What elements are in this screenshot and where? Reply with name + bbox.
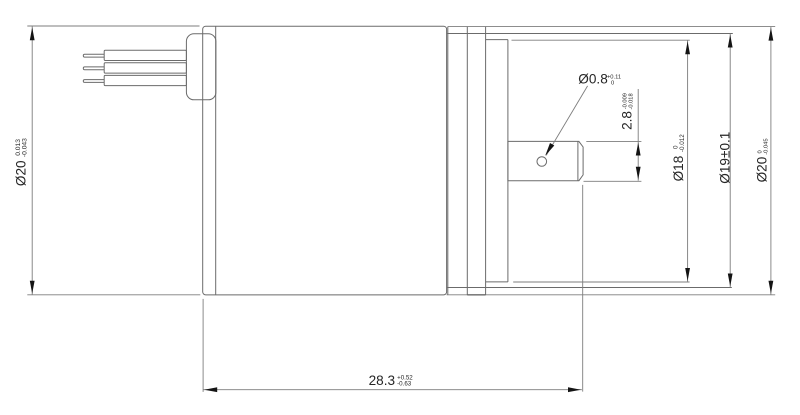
svg-text:-0.043: -0.043 [21,138,28,157]
svg-text:Ø19±0.1: Ø19±0.1 [717,132,732,184]
svg-text:-0.63: -0.63 [397,381,412,388]
svg-text:0: 0 [611,81,614,87]
svg-text:-0.012: -0.012 [679,134,686,152]
svg-text:Ø0.8: Ø0.8 [578,72,607,87]
svg-text:-0.045: -0.045 [763,138,769,154]
svg-text:Ø20: Ø20 [13,160,28,186]
svg-text:Ø18: Ø18 [671,156,686,182]
svg-text:2.8: 2.8 [619,111,634,130]
svg-text:0: 0 [757,150,763,153]
svg-text:Ø20: Ø20 [755,156,770,182]
svg-text:28.3: 28.3 [369,373,395,388]
svg-text:-0.018: -0.018 [628,93,634,109]
